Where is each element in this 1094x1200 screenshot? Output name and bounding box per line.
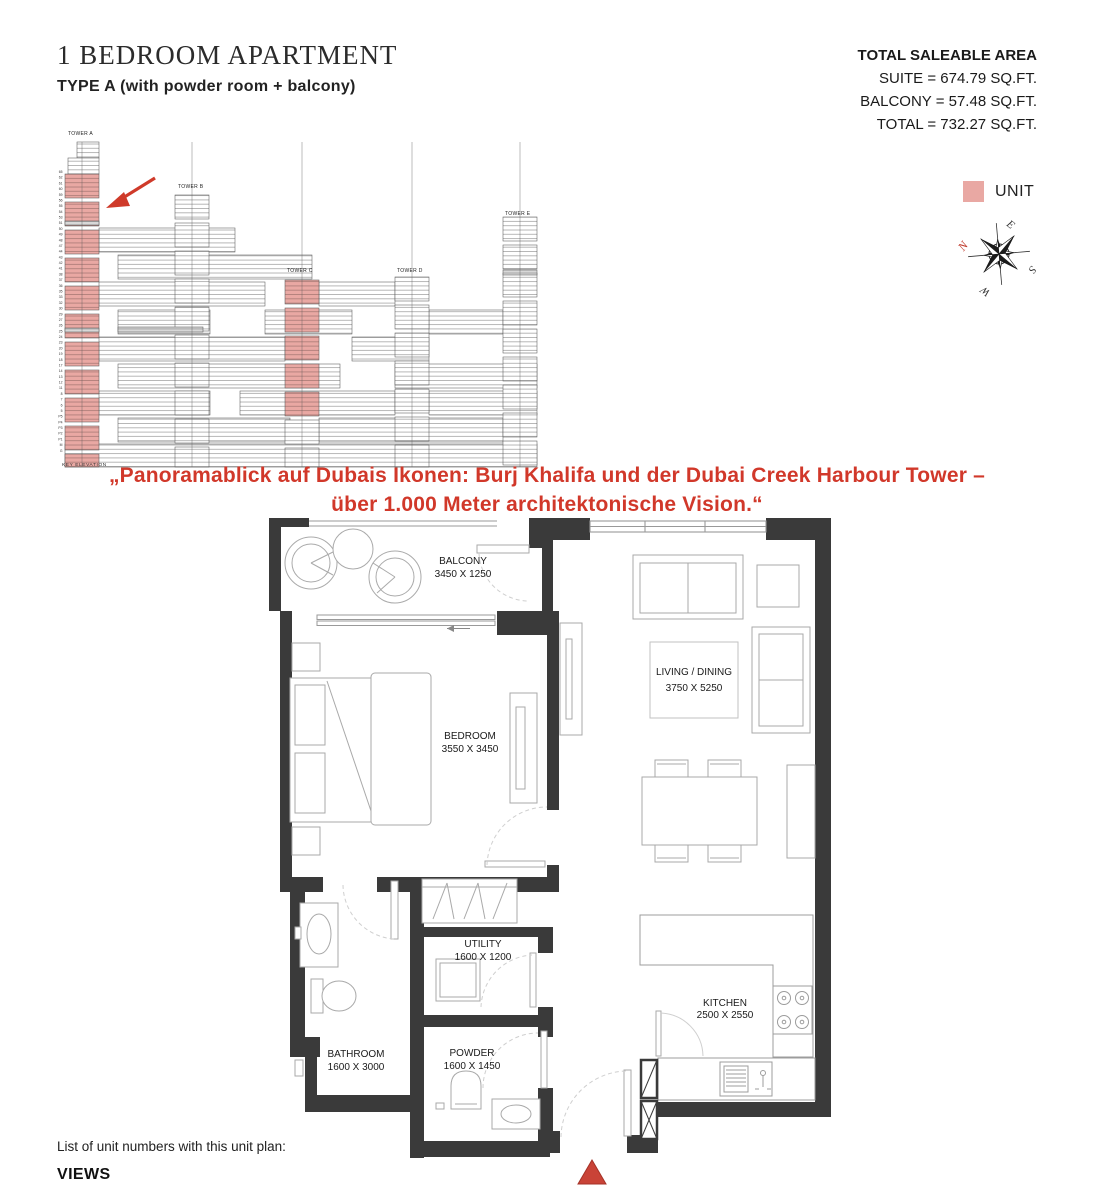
- elevation-block: [77, 142, 99, 158]
- unit-swatch-icon: [963, 181, 984, 202]
- compass-w: W: [978, 283, 993, 299]
- floor-number: 30: [59, 307, 63, 311]
- floor-number: 25: [59, 329, 63, 333]
- floor-number: 56: [59, 198, 63, 202]
- area-summary-heading: TOTAL SALEABLE AREA: [858, 44, 1037, 67]
- area-balcony: BALCONY = 57.48 SQ.FT.: [858, 90, 1037, 113]
- bathroom-dims: 1600 X 3000: [328, 1062, 385, 1073]
- floor-number: 49: [59, 233, 63, 237]
- balcony-furniture: [285, 529, 421, 603]
- living-furniture: [560, 555, 810, 735]
- floor-number: 36: [59, 284, 63, 288]
- unit-pointer-arrow: [106, 178, 155, 208]
- compass-star-group: [965, 220, 1033, 288]
- elevation-block: [68, 158, 99, 174]
- floor-number: 7: [61, 398, 63, 402]
- floor-number: 38: [59, 272, 63, 276]
- kitchen-label: KITCHEN: [703, 998, 747, 1009]
- elevation-block: [118, 255, 312, 279]
- area-total: TOTAL = 732.27 SQ.FT.: [858, 113, 1037, 136]
- powder-dims: 1600 X 1450: [444, 1061, 501, 1072]
- floor-number: 12: [59, 381, 63, 385]
- views-label: VIEWS: [57, 1166, 111, 1184]
- floor-number: 24: [59, 335, 63, 339]
- utility-dims: 1600 X 1200: [455, 952, 512, 963]
- tower-label: TOWER A: [68, 131, 93, 137]
- floor-number: P2: [58, 432, 62, 436]
- floor-number: 13: [59, 375, 63, 379]
- floor-number: 65: [59, 170, 63, 174]
- page-title: 1 BEDROOM APARTMENT: [57, 40, 397, 71]
- floor-number: 55: [59, 204, 63, 208]
- floor-number: 29: [59, 312, 63, 316]
- tower-label: TOWER C: [287, 268, 313, 274]
- tower-label: TOWER B: [178, 184, 204, 190]
- unit-legend: UNIT: [963, 181, 1034, 202]
- floor-number: 14: [59, 369, 63, 373]
- floor-number: 59: [59, 193, 63, 197]
- kitchen-dims: 2500 X 2550: [697, 1010, 754, 1021]
- area-summary: TOTAL SALEABLE AREA SUITE = 674.79 SQ.FT…: [858, 44, 1037, 136]
- floor-number: 32: [59, 301, 63, 305]
- unit-legend-label: UNIT: [995, 183, 1034, 201]
- brochure-page: 1 BEDROOM APARTMENT TYPE A (with powder …: [0, 0, 1094, 1200]
- dining-set: [642, 760, 815, 862]
- floor-number: 47: [59, 244, 63, 248]
- compass-e: E: [1003, 217, 1017, 231]
- caption-line-1: „Panoramablick auf Dubais Ikonen: Burj K…: [0, 461, 1094, 490]
- floor-number: P3: [58, 426, 62, 430]
- floor-number: 43: [59, 255, 63, 259]
- floor-number: 44: [59, 250, 63, 254]
- floor-number: G: [60, 449, 63, 453]
- floor-number: P4: [58, 420, 62, 424]
- utility-label: UTILITY: [464, 939, 502, 950]
- floor-number: P1: [58, 437, 62, 441]
- unit-list-label: List of unit numbers with this unit plan…: [57, 1139, 286, 1154]
- floor-number: 41: [59, 267, 63, 271]
- balcony-dims: 3450 X 1250: [435, 569, 492, 580]
- bedroom-door: [485, 807, 547, 867]
- floor-number: 54: [59, 210, 63, 214]
- bathroom-label: BATHROOM: [327, 1049, 384, 1060]
- entrance-door: [561, 1070, 631, 1137]
- sliding-door: [317, 615, 495, 632]
- floor-number: 26: [59, 324, 63, 328]
- floor-number: 61: [59, 181, 63, 185]
- living-label: LIVING / DINING: [656, 667, 732, 678]
- floor-number: 19: [59, 352, 63, 356]
- powder-door: [483, 1031, 547, 1088]
- floor-number: P5: [58, 415, 62, 419]
- tower-label: TOWER E: [505, 211, 531, 217]
- living-dims: 3750 X 5250: [666, 683, 723, 694]
- floor-number: 60: [59, 187, 63, 191]
- balcony-label: BALCONY: [439, 556, 487, 567]
- bedroom-label: BEDROOM: [444, 731, 496, 742]
- floor-number: 50: [59, 227, 63, 231]
- utility-fixtures: [436, 959, 480, 1001]
- powder-fixtures: [436, 1071, 540, 1129]
- floor-number: 42: [59, 261, 63, 265]
- marketing-caption: „Panoramablick auf Dubais Ikonen: Burj K…: [0, 461, 1094, 519]
- service-shaft: [641, 1060, 657, 1139]
- floor-number: 6: [61, 403, 63, 407]
- floor-number: 17: [59, 363, 63, 367]
- floor-plan: BALCONY 3450 X 1250 BEDROOM 3550 X 3450 …: [255, 515, 845, 1200]
- floor-number: 48: [59, 238, 63, 242]
- compass-rose-icon: E S W N: [952, 208, 1052, 308]
- elevation-block: [319, 282, 395, 306]
- elevation-block: [99, 228, 235, 252]
- floor-number: 37: [59, 278, 63, 282]
- entrance-marker: [578, 1160, 606, 1184]
- elevation-block: [118, 327, 203, 332]
- compass-n: N: [954, 238, 971, 254]
- floor-number: 35: [59, 289, 63, 293]
- floor-number: 18: [59, 358, 63, 362]
- floor-number: 27: [59, 318, 63, 322]
- floor-number: 8: [61, 392, 63, 396]
- elevation-block: [429, 310, 503, 334]
- floor-number: 33: [59, 295, 63, 299]
- floor-number: 20: [59, 346, 63, 350]
- bedroom-dims: 3550 X 3450: [442, 744, 499, 755]
- floor-number: M: [60, 443, 63, 447]
- floor-number: 5: [61, 409, 63, 413]
- page-subtitle: TYPE A (with powder room + balcony): [57, 78, 356, 96]
- compass-s: S: [1025, 264, 1038, 276]
- floor-number: 11: [59, 386, 63, 390]
- floor-number: 62: [59, 176, 63, 180]
- floor-number: 23: [59, 341, 63, 345]
- floor-number: 53: [59, 216, 63, 220]
- closet: [422, 879, 517, 923]
- tower-label: TOWER D: [397, 268, 423, 274]
- bedroom-furniture: [290, 643, 537, 855]
- area-suite: SUITE = 674.79 SQ.FT.: [858, 67, 1037, 90]
- key-elevation-diagram: TOWER ATOWER BTOWER CTOWER DTOWER E65626…: [50, 122, 555, 470]
- powder-label: POWDER: [450, 1048, 495, 1059]
- floor-number: 51: [59, 221, 63, 225]
